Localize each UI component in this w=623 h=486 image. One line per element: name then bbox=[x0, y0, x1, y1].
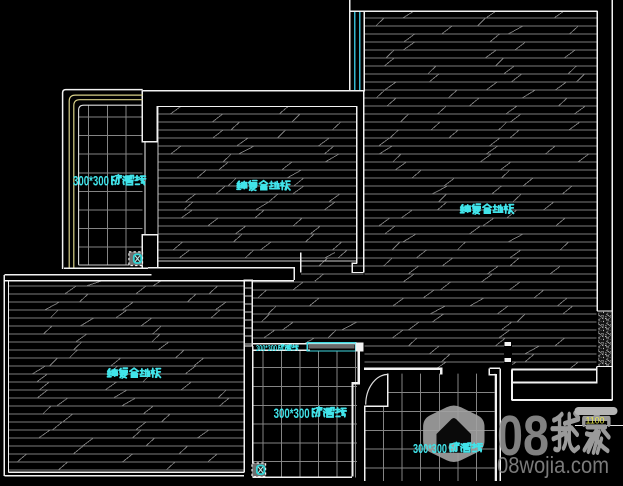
svg-text:1100: 1100 bbox=[586, 416, 605, 426]
svg-text:300*300: 300*300 bbox=[413, 441, 447, 456]
svg-text:300*300: 300*300 bbox=[256, 344, 277, 353]
svg-text:08wojia.com: 08wojia.com bbox=[497, 452, 609, 478]
svg-text:300*300: 300*300 bbox=[274, 406, 310, 421]
svg-text:300*300: 300*300 bbox=[73, 174, 109, 189]
